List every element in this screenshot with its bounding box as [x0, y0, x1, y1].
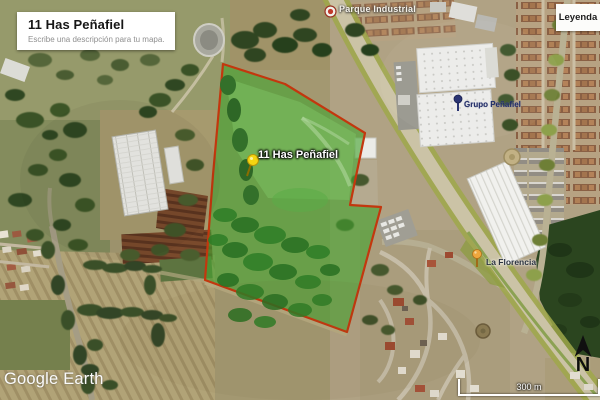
north-arrow[interactable]: N	[571, 335, 595, 375]
map-title-box: 11 Has Peñafiel Escribe una descripción …	[17, 12, 175, 50]
scale-label: 300 m	[516, 381, 541, 394]
satellite-imagery	[0, 0, 600, 400]
grupo-penafiel-label[interactable]: Grupo Peñafiel	[464, 100, 521, 109]
map-title[interactable]: 11 Has Peñafiel	[28, 17, 175, 32]
grupo-penafiel-marker-icon[interactable]	[452, 94, 464, 114]
map-description-placeholder[interactable]: Escribe una descripción para tu mapa.	[28, 35, 175, 44]
la-florencia-label[interactable]: La Florencia	[486, 257, 536, 267]
google-earth-logo: Google Earth	[4, 370, 104, 389]
google-earth-viewport: 11 Has Peñafiel Grupo Peñafiel La Floren…	[0, 0, 600, 400]
road-shield-icon	[324, 5, 337, 18]
la-florencia-marker-icon[interactable]	[470, 248, 484, 270]
north-label: N	[571, 355, 595, 375]
parcel-label[interactable]: 11 Has Peñafiel	[258, 149, 338, 161]
road-name-label: Parque Industrial	[339, 4, 416, 14]
legend-label: Leyenda	[559, 12, 598, 23]
scale-bar: 300 m	[458, 379, 600, 396]
legend-box: Leyenda	[556, 4, 600, 31]
